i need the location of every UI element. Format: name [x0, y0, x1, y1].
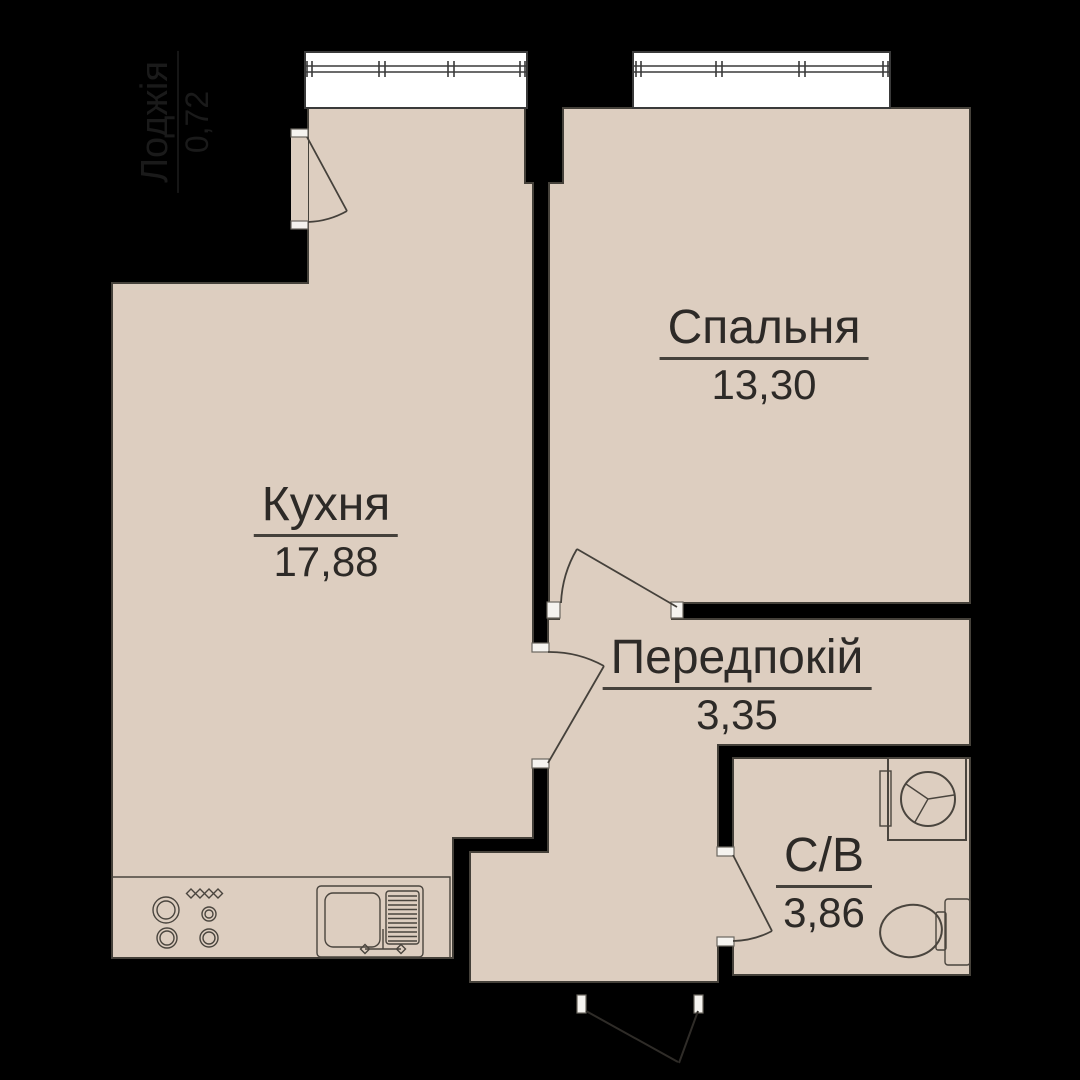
bedroom-area-value: 13,30 — [711, 360, 816, 410]
kitchen-name: Кухня — [254, 480, 398, 537]
entrance-door-jamb-left — [577, 995, 586, 1013]
kitchen-label: Кухня 17,88 — [254, 480, 398, 586]
bathroom-name: С/В — [776, 831, 872, 888]
bathroom-area-value: 3,86 — [783, 888, 865, 938]
bathroom-door-jamb-bottom — [717, 937, 734, 946]
kitchen-area-value: 17,88 — [273, 537, 378, 587]
floor-plan: Кухня 17,88 Спальня 13,30 Передпокій 3,3… — [0, 0, 1080, 1080]
kitchen-door-jamb-bottom — [532, 759, 549, 768]
entrance-door-jamb-right — [694, 995, 703, 1013]
bathroom-door-jamb-top — [717, 847, 734, 856]
loggia-name: Лоджія — [135, 51, 179, 193]
balcony-door-jamb-bottom — [291, 221, 308, 229]
bathroom-label: С/В 3,86 — [776, 831, 872, 937]
bathroom-door-opening — [717, 856, 734, 937]
hallway-name: Передпокій — [603, 633, 872, 690]
hallway-label: Передпокій 3,35 — [603, 633, 872, 739]
kitchen-window — [305, 52, 527, 108]
balcony-door-opening — [291, 136, 308, 224]
hallway-area-value: 3,35 — [696, 690, 778, 740]
bedroom-window-band — [633, 52, 890, 108]
loggia-label: Лоджія 0,72 — [135, 51, 217, 193]
bedroom-window — [633, 52, 890, 108]
bedroom-name: Спальня — [660, 303, 869, 360]
bedroom-door-jamb-left — [547, 602, 560, 618]
entrance-door-swing — [586, 1011, 698, 1063]
bedroom-door-opening — [560, 602, 671, 620]
kitchen-door-opening — [532, 651, 549, 760]
loggia-area-value: 0,72 — [179, 91, 217, 153]
windows — [305, 52, 890, 108]
kitchen-door-jamb-top — [532, 643, 549, 652]
balcony-door-jamb-top — [291, 129, 308, 137]
kitchen-window-band — [305, 52, 527, 108]
bedroom-label: Спальня 13,30 — [660, 303, 869, 409]
